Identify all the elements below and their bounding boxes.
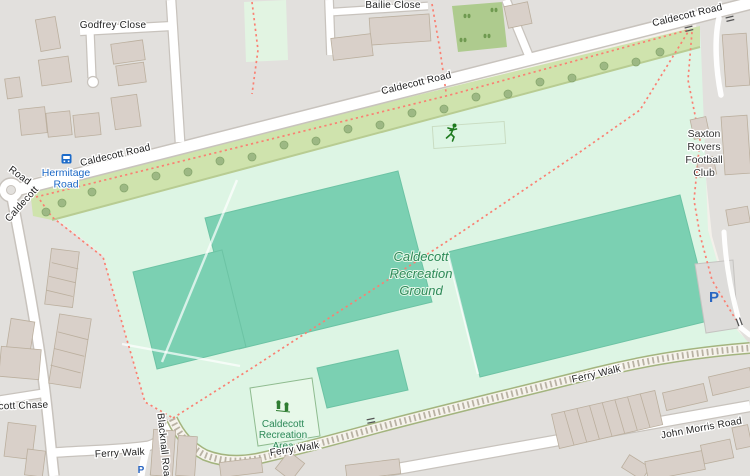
saxton-label-line4: Club: [693, 167, 715, 179]
parking-p-small: P: [138, 465, 145, 476]
green-patch: [244, 0, 288, 62]
map-svg: Godfrey Close Bailie Close Caldecott Roa…: [0, 0, 750, 476]
tree-icon: [248, 153, 256, 161]
godfrey-close-turning-circle: [88, 77, 99, 88]
park-name-line1: Caldecott: [394, 249, 450, 264]
tree-icon: [632, 58, 640, 66]
tree-icon: [344, 125, 352, 133]
tree-icon: [472, 93, 480, 101]
saxton-label-line3: Football: [685, 154, 722, 166]
saxton-label-line2: Rovers: [687, 141, 720, 153]
tree-icon: [58, 199, 66, 207]
tree-icon: [656, 48, 664, 56]
tree-icon: [184, 168, 192, 176]
roundabout-island: [7, 186, 16, 195]
road-label-godfrey-close: Godfrey Close: [80, 20, 147, 31]
tree-icon: [408, 109, 416, 117]
tree-icon: [42, 208, 50, 216]
rec-area-label-line1: Caldecott: [262, 419, 304, 430]
tree-icon: [152, 172, 160, 180]
tree-icon: [600, 62, 608, 70]
bus-stop-label-line2: Road: [53, 179, 78, 191]
tree-icon: [312, 137, 320, 145]
road-label-bailie-close: Bailie Close: [365, 0, 420, 11]
bus-stop-icon: [62, 154, 72, 164]
tree-icon: [440, 105, 448, 113]
scrub-area: [452, 2, 507, 52]
tree-icon: [504, 90, 512, 98]
tree-icon: [536, 78, 544, 86]
park-name-line3: Ground: [399, 283, 443, 298]
bailie-close-road: [329, 0, 331, 55]
tree-icon: [376, 121, 384, 129]
tree-icon: [216, 157, 224, 165]
saxton-label-line1: Saxton: [688, 128, 721, 140]
parking-p: P: [709, 289, 719, 306]
rec-area-label-line2: Recreation: [259, 430, 307, 441]
tree-icon: [120, 184, 128, 192]
tree-icon: [88, 188, 96, 196]
tree-icon: [280, 141, 288, 149]
map-canvas[interactable]: Godfrey Close Bailie Close Caldecott Roa…: [0, 0, 750, 476]
bus-stop-label-line1: Hermitage: [42, 167, 91, 179]
park-name-line2: Recreation: [390, 266, 453, 281]
tree-icon: [568, 74, 576, 82]
